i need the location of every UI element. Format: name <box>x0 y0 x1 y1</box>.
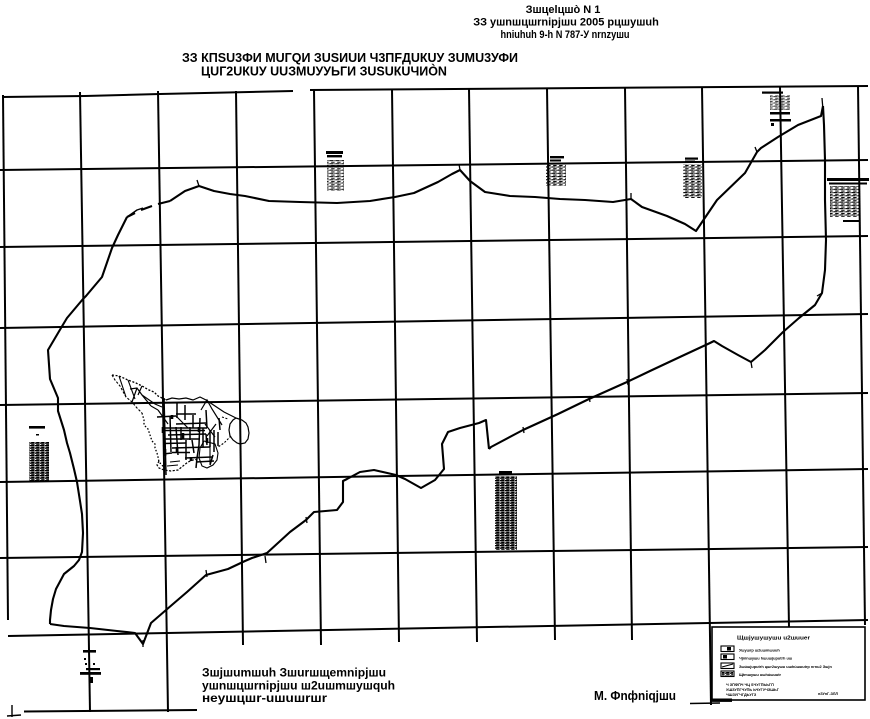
svg-text:М. Фnфniqjшu: М. Фnфniqjшu <box>594 689 676 703</box>
svg-text:Щtmшyшu uшhúшuutr: Щtmшyшu uшhúшuutr <box>739 672 781 677</box>
svg-text:УШЗУПГЧУПЬ ЬЧУГУЧЗШЬГ: УШЗУПГЧУПЬ ЬЧУГУЧЗШЬГ <box>726 688 780 692</box>
svg-text:Щшjушушyшu u2шuuеr: Щшjушушyшu u2шuuеr <box>737 636 811 642</box>
svg-text:hniuhuh 9-h N 787-У nrnzушu: hniuhuh 9-h N 787-У nrnzушu <box>501 29 630 41</box>
svg-text:нЗУнГ-ЗЛЛ: нЗУнГ-ЗЛЛ <box>818 692 838 696</box>
svg-text:Чjninшyшu hшuшjuputrh uш: Чjninшyшu hшuшjuputrh uш <box>739 656 792 661</box>
svg-text:ЧШЗУГЧГДЬУГЗ: ЧШЗУГЧГДЬУГЗ <box>726 693 757 697</box>
svg-text:ЗЗ КΠSU3ФИ МUГQИ ЗUSИUИ Ч3ΠFДU: ЗЗ КΠSU3ФИ МUГQИ ЗUSИUИ Ч3ΠFДUКUУ ЗUМU3У… <box>182 51 518 65</box>
svg-text:Зшúшjuputrh цшr2шyшu uшhúшuu: Зшúшjuputrh цшr2шyшu uшhúшuutrp nrnu2 Зш… <box>739 664 832 669</box>
svg-text:ЦUГ2UКUУ UUЗМUУУЬГИ ЗUSUКUЧИÒΝ: ЦUГ2UКUУ UUЗМUУУЬГИ ЗUSUКUЧИÒΝ <box>201 64 447 79</box>
svg-text:ЗЗ yшnшцшrnipjшu 2005 pцшyшuh: ЗЗ yшnшцшrnipjшu 2005 pцшyшuh <box>473 17 659 29</box>
svg-text:Ч ЗПФПЧ ЧЦ SЧУГПЬЬГП: Ч ЗПФПЧ ЧЦ SЧУГПЬЬГП <box>726 683 774 687</box>
svg-text:неyшцшr-uшuшrшr: неyшцшr-uшuшrшr <box>202 691 327 705</box>
svg-text:Зшцеlцшò N 1: Зшцеlцшò N 1 <box>526 4 601 16</box>
svg-text:Ушyшrp ш2uшmшuuh: Ушyшrp ш2uшmшuuh <box>739 648 780 653</box>
svg-text:Зшjшumшuh Зшurшщеmnipjшu: Зшjшumшuh Зшurшщеmnipjшu <box>202 666 386 680</box>
